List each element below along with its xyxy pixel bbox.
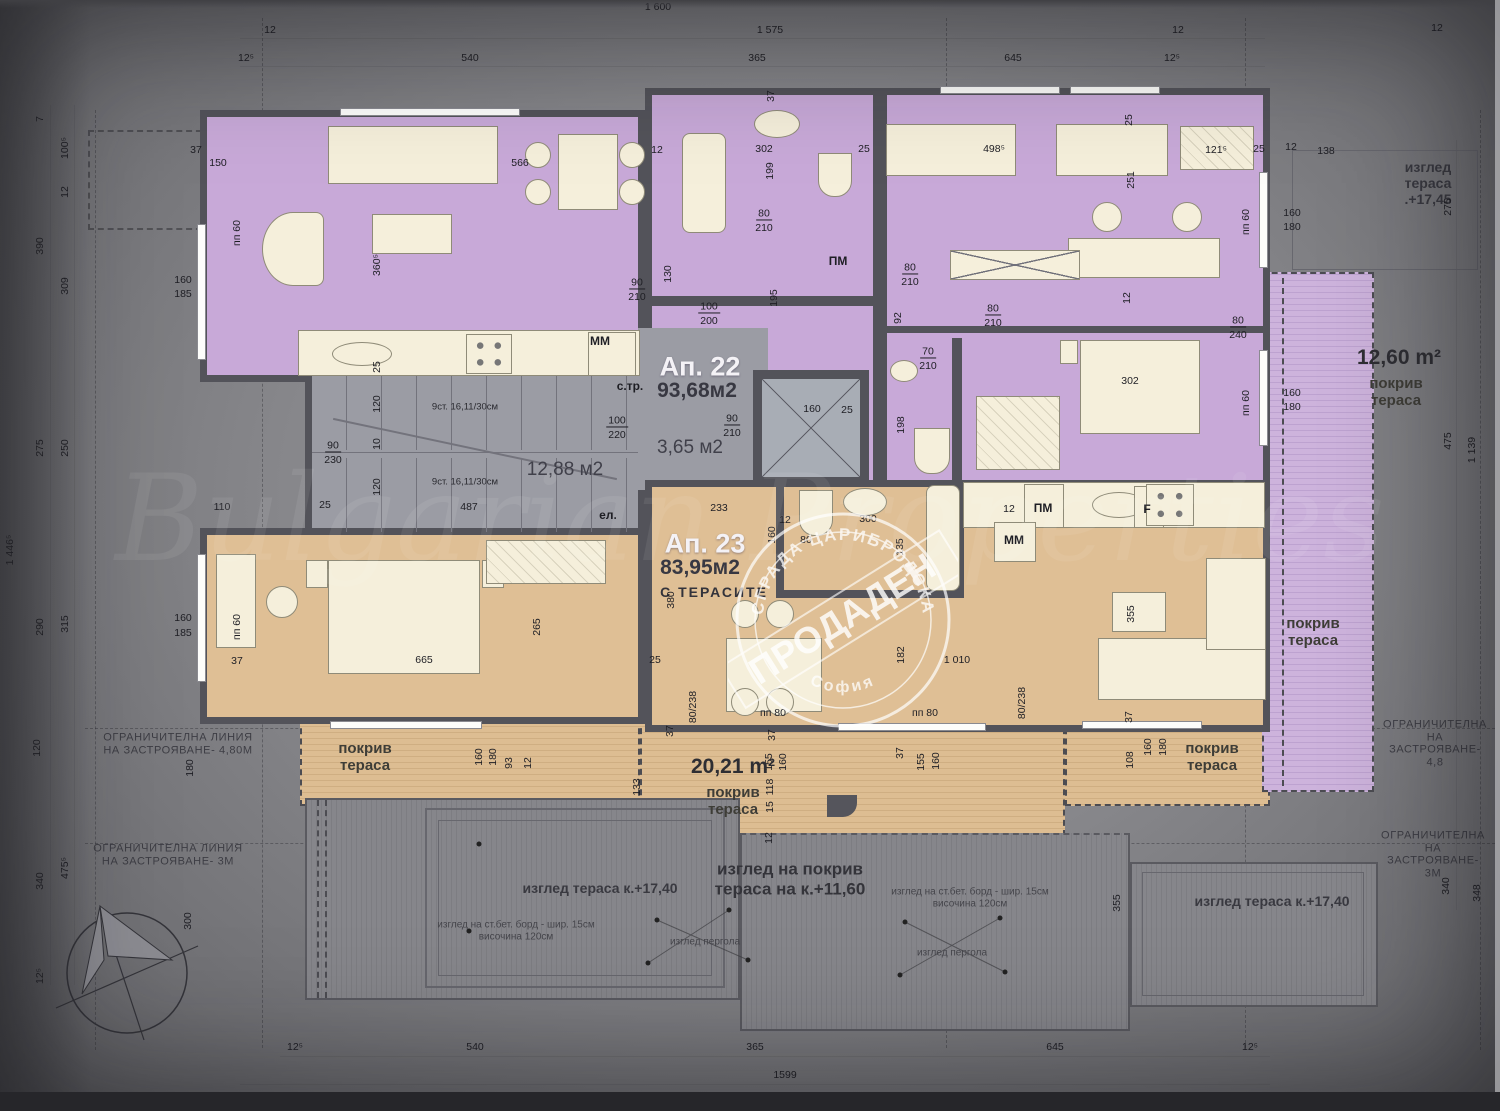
plan-label: 160 xyxy=(174,612,192,624)
plan-label: 540 xyxy=(466,1041,484,1053)
toilet xyxy=(914,428,950,474)
stair-treads-down xyxy=(312,458,638,532)
desk-chair xyxy=(1172,202,1202,232)
nightstand xyxy=(306,560,328,588)
terrace-purple-inner-line xyxy=(1282,278,1284,786)
window xyxy=(340,108,520,116)
sink xyxy=(890,360,918,382)
chair xyxy=(525,179,551,205)
bed-double xyxy=(328,560,480,674)
plan-label: 250 xyxy=(59,439,71,457)
toilet xyxy=(818,153,852,197)
dim-chain xyxy=(74,105,75,985)
plan-label: ОГРАНИЧИТЕЛНА НА ЗАСТРОЯВАНЕ- 4,8 xyxy=(1383,719,1487,770)
kitchen-sink xyxy=(332,342,392,366)
plan-label: 7 xyxy=(34,116,46,122)
stair-treads-up xyxy=(312,372,638,450)
desk-chair xyxy=(1092,202,1122,232)
plan-label: 1 139 xyxy=(1466,437,1478,463)
desk-chair xyxy=(266,586,298,618)
plan-label: 12 xyxy=(1431,22,1443,34)
window xyxy=(197,224,206,360)
plan-label: 12⁵ xyxy=(34,968,46,984)
cabinet-mm xyxy=(994,522,1036,562)
plan-label: 340 xyxy=(1440,877,1452,895)
window xyxy=(197,554,206,682)
bed-single xyxy=(1056,124,1168,176)
plan-label: 475⁵ xyxy=(59,857,71,879)
dim-chain xyxy=(240,38,1265,39)
dim-chain xyxy=(240,1084,1270,1085)
plan-label: 645 xyxy=(1004,52,1022,64)
plan-label: 475 xyxy=(1442,432,1454,450)
plan-label: 275 xyxy=(34,439,46,457)
plan-label: 1599 xyxy=(773,1069,796,1081)
roof-outline-topright xyxy=(1292,150,1478,270)
stair-lobby xyxy=(638,328,768,490)
wardrobe xyxy=(1180,126,1254,170)
window xyxy=(1259,350,1268,446)
roof-left-dashes xyxy=(317,800,327,998)
plan-label: 12 xyxy=(264,24,276,36)
edge-band-bottom xyxy=(0,1092,1500,1111)
sink xyxy=(754,110,800,138)
plan-label: ОГРАНИЧИТЕЛНА ЛИНИЯ НА ЗАСТРОЯВАНЕ- 4,80… xyxy=(103,731,252,756)
plan-label: 348 xyxy=(1471,884,1483,902)
stove xyxy=(1146,484,1194,526)
plan-label: 315 xyxy=(59,615,71,633)
chair xyxy=(619,179,645,205)
plan-label: 110 xyxy=(214,501,231,513)
sofa xyxy=(328,126,498,184)
terrace-door xyxy=(1082,721,1202,729)
chest xyxy=(950,250,1080,280)
stamp-arc-bottom: София xyxy=(808,672,878,696)
sofa-l-vertical xyxy=(1206,558,1266,650)
window xyxy=(1259,172,1268,268)
wardrobe xyxy=(486,540,606,584)
chair xyxy=(619,142,645,168)
plan-label: покрив тераса xyxy=(1369,375,1422,410)
plan-label: 185 xyxy=(174,627,192,639)
plan-label: 12 xyxy=(1172,24,1184,36)
side-table xyxy=(1112,592,1166,632)
bathtub xyxy=(682,133,726,233)
dining-table xyxy=(558,134,618,210)
desk xyxy=(216,554,256,648)
plan-label: 309 xyxy=(59,277,71,295)
plan-label: 12⁵ xyxy=(287,1041,303,1053)
wall-bath-partition xyxy=(650,296,882,306)
edge-shadow-top xyxy=(0,0,1500,8)
plan-label: 120 xyxy=(31,739,43,757)
stove xyxy=(466,334,512,374)
pergola-marks xyxy=(430,830,1130,1010)
window xyxy=(940,86,1060,94)
plan-label: 12 xyxy=(59,186,71,198)
plan-label: ОГРАНИЧИТЕЛНА НА ЗАСТРОЯВАНЕ- 3М xyxy=(1381,830,1485,881)
dim-chain xyxy=(240,66,1265,67)
edge-line-right xyxy=(1495,0,1500,1092)
grid-line xyxy=(1480,110,1481,1050)
armchair xyxy=(262,212,324,286)
plan-label: 540 xyxy=(461,52,479,64)
wardrobe xyxy=(976,396,1060,470)
coffee-table xyxy=(372,214,452,254)
plan-label: 365 xyxy=(748,52,766,64)
plan-label: 160 xyxy=(174,274,192,286)
plan-label: 390 xyxy=(34,237,46,255)
stair-landing-line xyxy=(312,452,638,453)
bed-single xyxy=(886,124,1016,176)
chair xyxy=(525,142,551,168)
bed-double xyxy=(1080,340,1200,434)
plan-label: 645 xyxy=(1046,1041,1064,1053)
plan-label: 12⁵ xyxy=(238,52,254,64)
dim-chain xyxy=(50,105,51,985)
plan-label: 1 446⁵ xyxy=(4,535,16,566)
plan-label: 340 xyxy=(34,872,46,890)
svg-text:София: София xyxy=(808,672,878,696)
dim-chain xyxy=(280,1056,1270,1057)
terrace-door xyxy=(330,721,482,729)
plan-label: 185 xyxy=(174,288,192,300)
wall-wc-partition xyxy=(952,338,962,488)
sold-stamp: СГРАДА ЦАРИБРОДСКА София ПРОДАДЕН xyxy=(728,505,958,735)
plan-label: 290 xyxy=(34,618,46,636)
terrace-left xyxy=(300,718,640,806)
elevator xyxy=(753,370,869,486)
desk xyxy=(1068,238,1220,278)
plan-label: 1 575 xyxy=(757,24,783,36)
plan-label: ОГРАНИЧИТЕЛНА ЛИНИЯ НА ЗАСТРОЯВАНЕ- 3М xyxy=(93,842,242,867)
floor-plan-page: { "title": "Top floor plan — building Ts… xyxy=(0,0,1500,1111)
plan-label: 12⁵ xyxy=(1164,52,1180,64)
plan-label: 365 xyxy=(746,1041,764,1053)
roof-view-right-inner xyxy=(1142,872,1364,996)
cabinet-mm xyxy=(588,332,636,376)
terrace-purple-right xyxy=(1262,272,1374,792)
north-arrow xyxy=(52,898,202,1048)
plan-label: 180 xyxy=(184,759,196,777)
plan-label: 100⁵ xyxy=(59,137,71,159)
nightstand xyxy=(1060,340,1078,364)
window xyxy=(1070,86,1160,94)
